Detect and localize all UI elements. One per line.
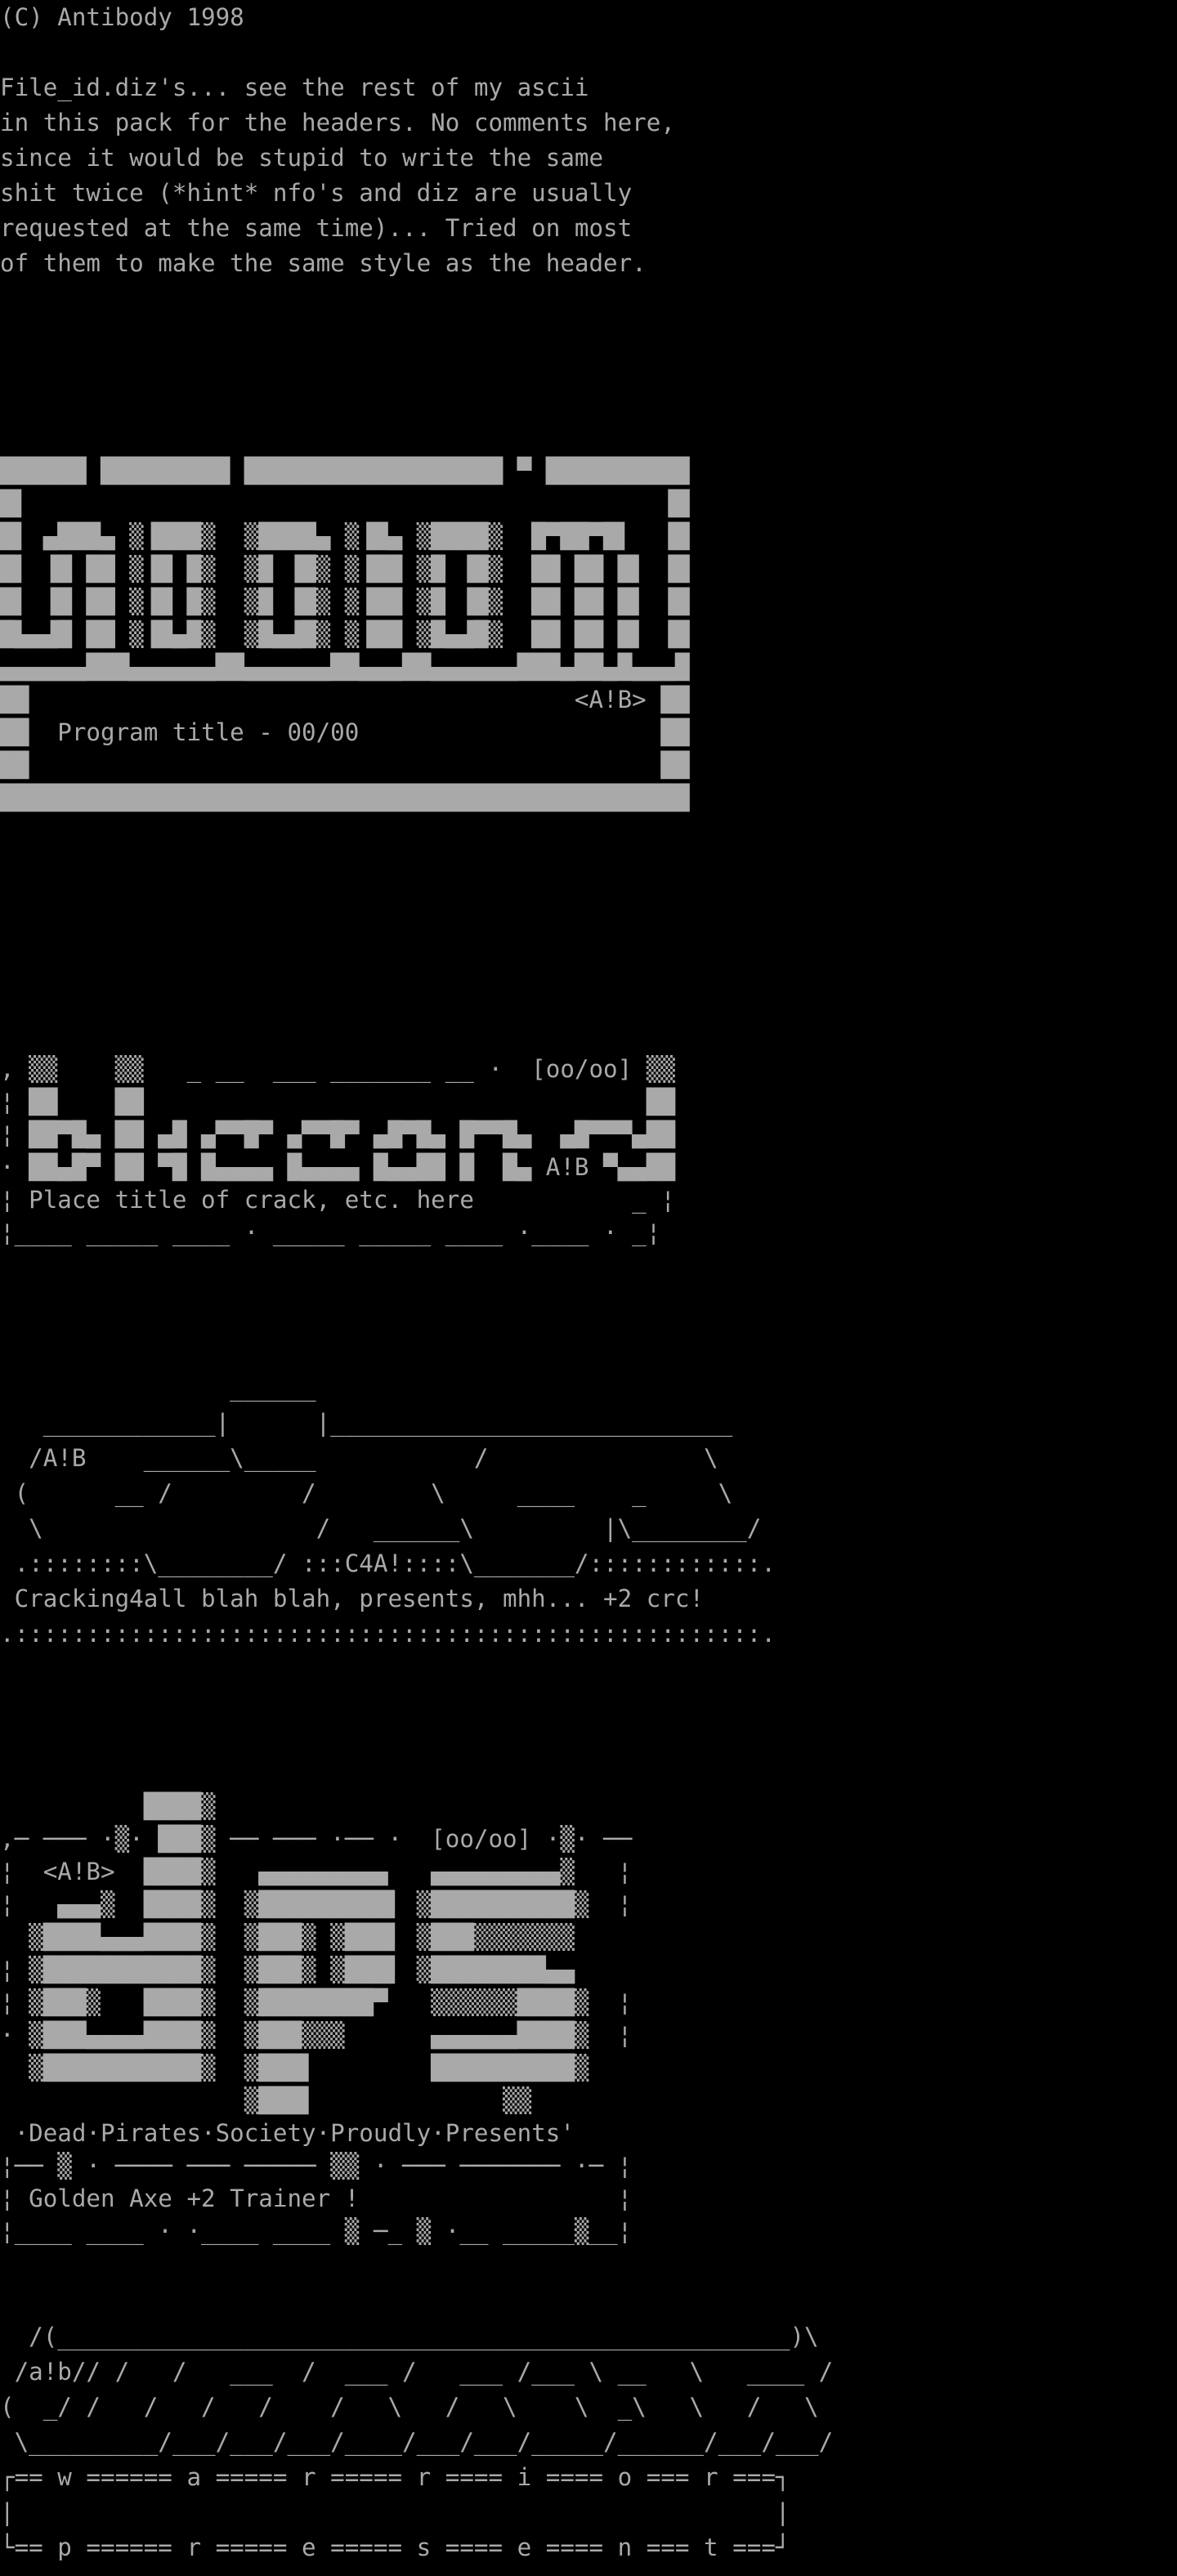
logo-blizzard-header: , ▒▒ ▒▒ _ __ ___ _______ __ · [oo/oo] ▒▒… xyxy=(0,1053,675,1249)
logo-c4a-cracking4all-header: ______ ____________| |__________________… xyxy=(0,1371,776,1652)
logo-warrior-present-footer: /(______________________________________… xyxy=(0,2319,833,2565)
copyright-line: (C) Antibody 1998 xyxy=(0,0,244,35)
logo-dps-dead-pirates-society-header: ████▒ ,─ ─── ·▒· ███▒ ── ─── ·── · [oo/o… xyxy=(0,1790,632,2247)
logo-unnamed-block-header: ██████ █████████ ██████████████████ ▀ ██… xyxy=(0,454,689,814)
intro-paragraph: File_id.diz's... see the rest of my asci… xyxy=(0,70,675,281)
